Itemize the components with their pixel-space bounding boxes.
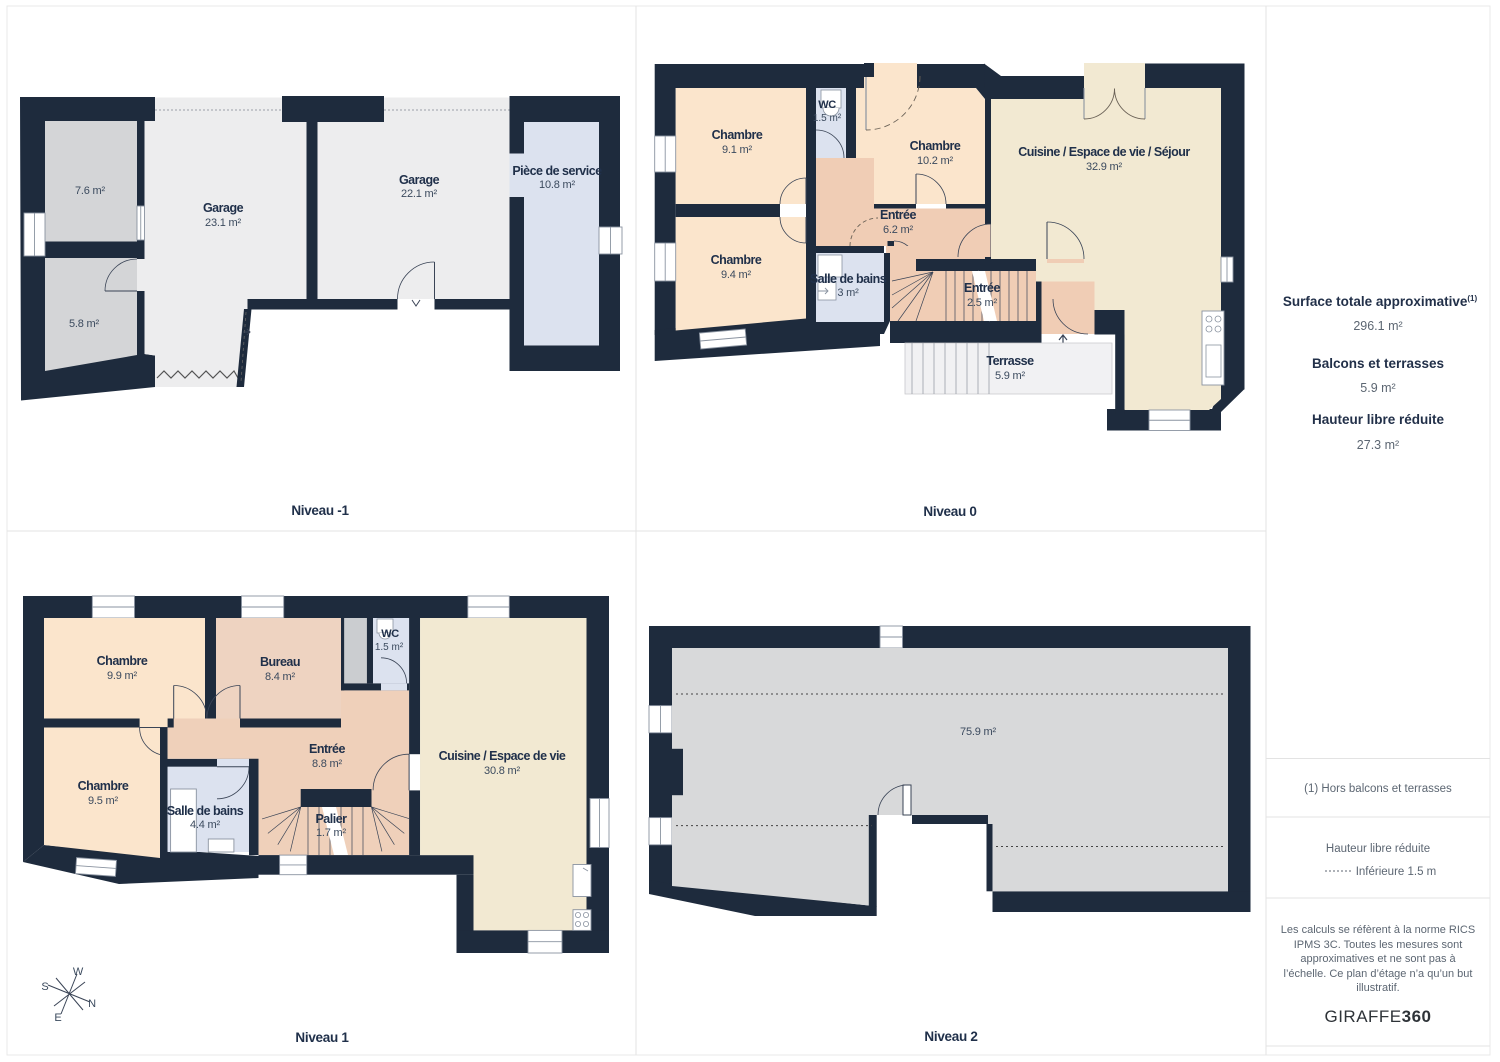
svg-text:Chambre: Chambre xyxy=(78,779,129,793)
svg-text:illustratif.: illustratif. xyxy=(1356,982,1399,994)
svg-text:Terrasse: Terrasse xyxy=(986,354,1034,368)
svg-text:27.3 m²: 27.3 m² xyxy=(1357,438,1399,452)
svg-text:8.8 m²: 8.8 m² xyxy=(312,758,343,770)
svg-text:Niveau 2: Niveau 2 xyxy=(924,1029,977,1044)
svg-text:23.1 m²: 23.1 m² xyxy=(205,217,241,229)
svg-text:32.9 m²: 32.9 m² xyxy=(1086,161,1122,173)
svg-text:8.4 m²: 8.4 m² xyxy=(265,671,296,683)
svg-text:Garage: Garage xyxy=(203,201,244,215)
svg-text:Inférieure 1.5 m: Inférieure 1.5 m xyxy=(1356,866,1437,878)
svg-text:Hauteur libre réduite: Hauteur libre réduite xyxy=(1312,412,1445,427)
svg-text:1.7 m²: 1.7 m² xyxy=(316,827,347,839)
svg-text:9.9 m²: 9.9 m² xyxy=(107,670,138,682)
svg-text:GIRAFFE360: GIRAFFE360 xyxy=(1324,1007,1431,1026)
svg-text:Cuisine / Espace de vie / Séjo: Cuisine / Espace de vie / Séjour xyxy=(1018,145,1190,159)
svg-text:Chambre: Chambre xyxy=(711,253,762,267)
svg-text:Cuisine / Espace de vie: Cuisine / Espace de vie xyxy=(439,749,566,763)
svg-text:Niveau -1: Niveau -1 xyxy=(291,503,349,518)
svg-text:Chambre: Chambre xyxy=(712,128,763,142)
svg-text:1.5 m²: 1.5 m² xyxy=(375,642,404,653)
svg-text:WC: WC xyxy=(818,99,836,111)
svg-text:Niveau 1: Niveau 1 xyxy=(295,1030,349,1045)
svg-text:Chambre: Chambre xyxy=(97,654,148,668)
svg-text:2.5 m²: 2.5 m² xyxy=(967,297,998,309)
svg-text:Salle de bains: Salle de bains xyxy=(810,272,887,286)
svg-text:Niveau 0: Niveau 0 xyxy=(923,504,976,519)
svg-text:7.6 m²: 7.6 m² xyxy=(75,185,106,197)
svg-text:30.8 m²: 30.8 m² xyxy=(484,765,520,777)
svg-text:E: E xyxy=(54,1012,61,1024)
svg-text:Chambre: Chambre xyxy=(910,139,961,153)
svg-text:Entrée: Entrée xyxy=(880,208,916,222)
svg-text:9.4 m²: 9.4 m² xyxy=(721,269,752,281)
svg-text:75.9 m²: 75.9 m² xyxy=(960,726,996,738)
svg-text:9.5 m²: 9.5 m² xyxy=(88,795,119,807)
svg-text:Hauteur libre réduite: Hauteur libre réduite xyxy=(1326,843,1430,855)
svg-text:Balcons et terrasses: Balcons et terrasses xyxy=(1312,356,1444,371)
svg-text:Salle de bains: Salle de bains xyxy=(167,804,244,818)
svg-text:1.5 m²: 1.5 m² xyxy=(813,113,842,124)
svg-text:Les calculs se réfèrent à la n: Les calculs se réfèrent à la norme RICS xyxy=(1281,924,1475,936)
svg-text:5.9 m²: 5.9 m² xyxy=(995,370,1026,382)
svg-text:Palier: Palier xyxy=(315,812,347,826)
svg-text:approximatives et ne sont pas: approximatives et ne sont pas à xyxy=(1300,953,1456,965)
svg-text:5.8 m²: 5.8 m² xyxy=(69,318,100,330)
svg-text:Garage: Garage xyxy=(399,173,440,187)
svg-text:10.2 m²: 10.2 m² xyxy=(917,155,953,167)
svg-text:4.4 m²: 4.4 m² xyxy=(190,819,221,831)
svg-text:N: N xyxy=(88,998,96,1010)
svg-text:S: S xyxy=(41,981,48,993)
svg-text:Pièce de service: Pièce de service xyxy=(512,164,602,178)
svg-text:22.1 m²: 22.1 m² xyxy=(401,188,437,200)
svg-text:3 m²: 3 m² xyxy=(837,287,859,299)
svg-text:Surface totale approximative(1: Surface totale approximative(1) xyxy=(1283,294,1478,309)
svg-text:W: W xyxy=(73,966,84,978)
svg-text:IPMS 3C. Toutes les mesures so: IPMS 3C. Toutes les mesures sont xyxy=(1294,939,1463,951)
svg-text:(1) Hors balcons et terrasses: (1) Hors balcons et terrasses xyxy=(1304,783,1452,795)
svg-text:9.1 m²: 9.1 m² xyxy=(722,144,753,156)
svg-text:6.2 m²: 6.2 m² xyxy=(883,224,914,236)
svg-text:l’échelle. Ce plan d’étage n’a: l’échelle. Ce plan d’étage n’a qu’un but xyxy=(1284,968,1473,980)
svg-text:5.9 m²: 5.9 m² xyxy=(1360,381,1395,395)
svg-text:Entrée: Entrée xyxy=(964,281,1000,295)
svg-text:296.1 m²: 296.1 m² xyxy=(1353,319,1402,333)
svg-text:Entrée: Entrée xyxy=(309,742,345,756)
svg-text:10.8 m²: 10.8 m² xyxy=(539,179,575,191)
svg-text:Bureau: Bureau xyxy=(260,655,300,669)
svg-text:WC: WC xyxy=(381,628,399,640)
